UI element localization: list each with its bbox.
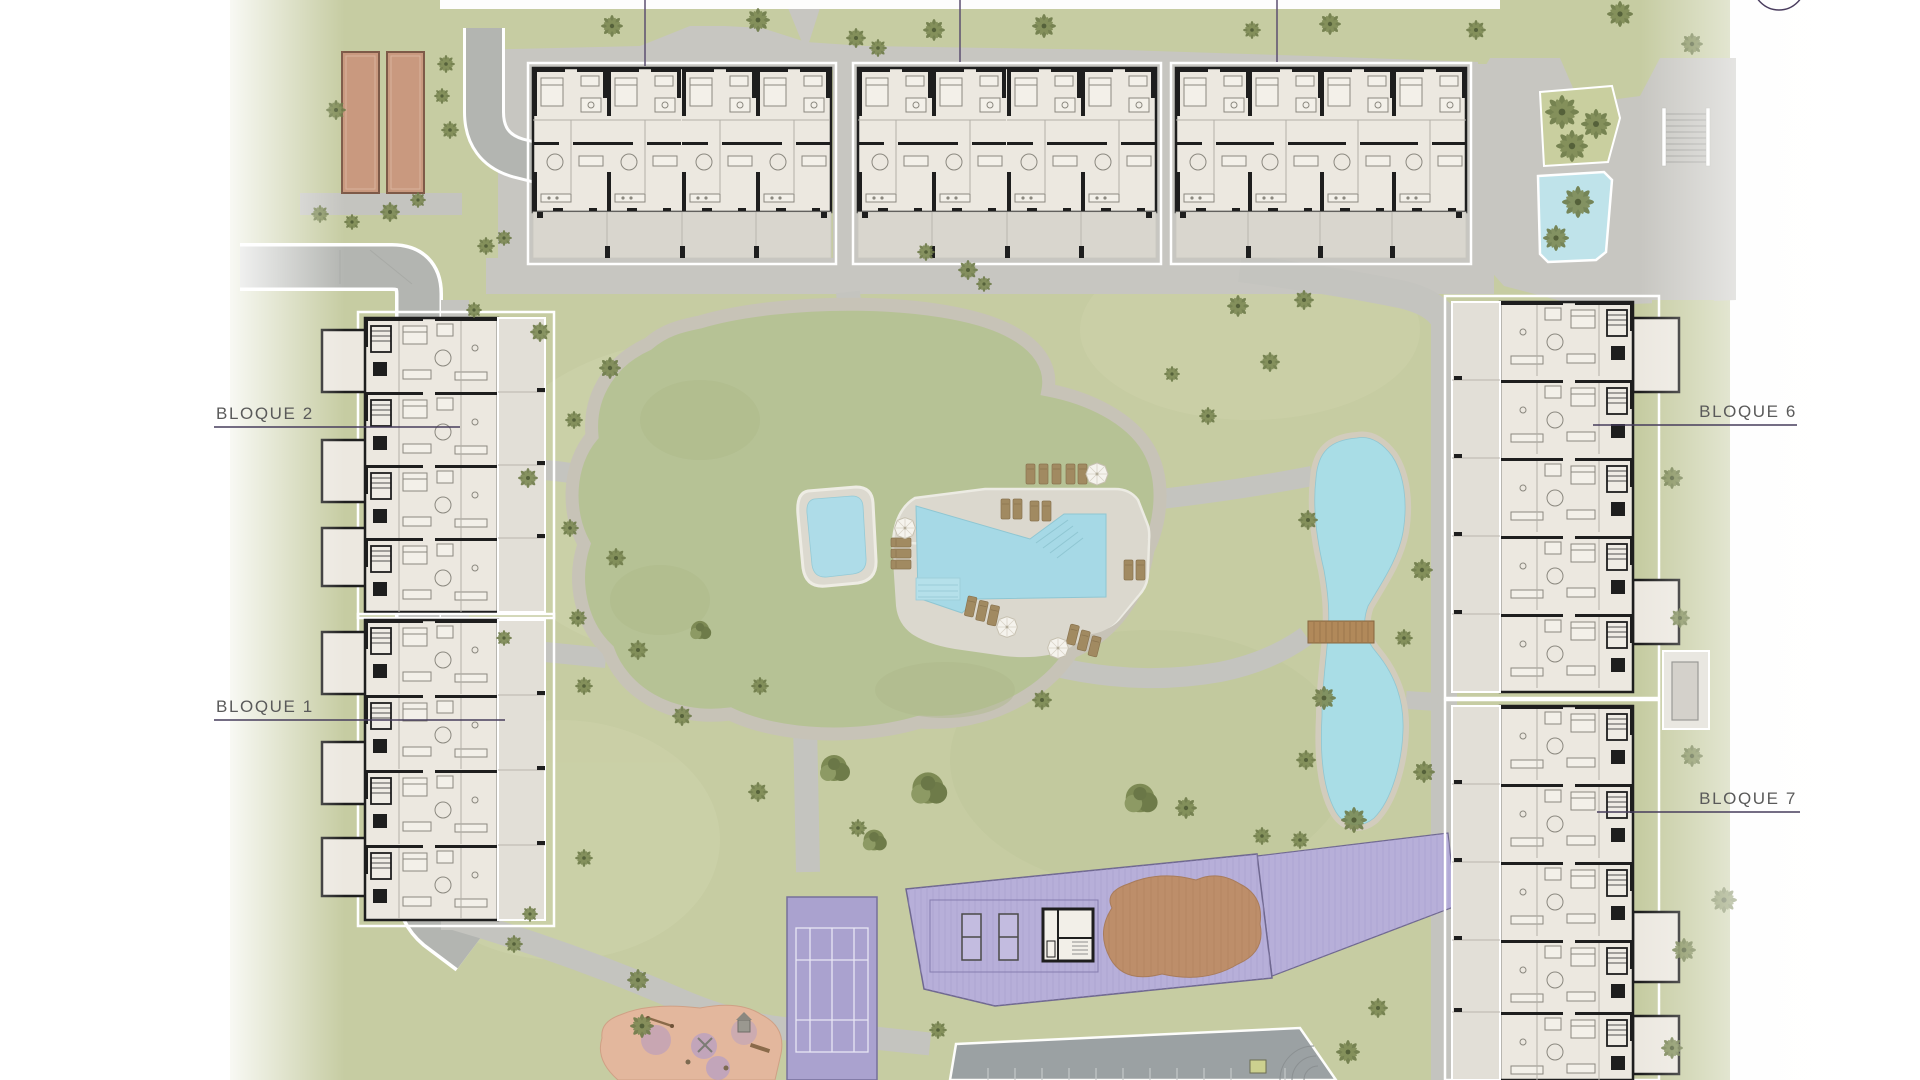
building-bloque-1: [322, 614, 554, 926]
bloque-2-label: BLOQUE 2: [216, 404, 314, 423]
bloque-1-label: BLOQUE 1: [216, 697, 314, 716]
left-fade: [0, 0, 345, 1080]
playground-surface: [600, 1005, 782, 1080]
site-plan-drawing: BLOQUE 2 BLOQUE 1 BLOQUE 6 BLOQUE 7: [0, 0, 1920, 1080]
water-feature: [1538, 172, 1612, 262]
building-block-top-1: [528, 63, 836, 264]
ev-parking-marker: [1250, 1060, 1266, 1073]
utility-structure: [1663, 651, 1709, 729]
top-margin: [440, 0, 1500, 9]
bloque-6-label: BLOQUE 6: [1699, 402, 1797, 421]
top-buildings: [528, 63, 1471, 264]
bridge-icon: [1308, 621, 1374, 643]
site-plan-page: BLOQUE 2 BLOQUE 1 BLOQUE 6 BLOQUE 7: [0, 0, 1920, 1080]
right-fade: [1640, 0, 1920, 1080]
playground: [600, 1005, 782, 1080]
building-bloque-2: [322, 312, 554, 618]
kids-pool: [807, 496, 866, 577]
tennis-court: [787, 897, 877, 1080]
building-block-top-3: [1171, 63, 1471, 264]
pool-house: [1043, 909, 1093, 961]
bloque-7-label: BLOQUE 7: [1699, 789, 1797, 808]
building-block-top-2: [853, 63, 1161, 264]
